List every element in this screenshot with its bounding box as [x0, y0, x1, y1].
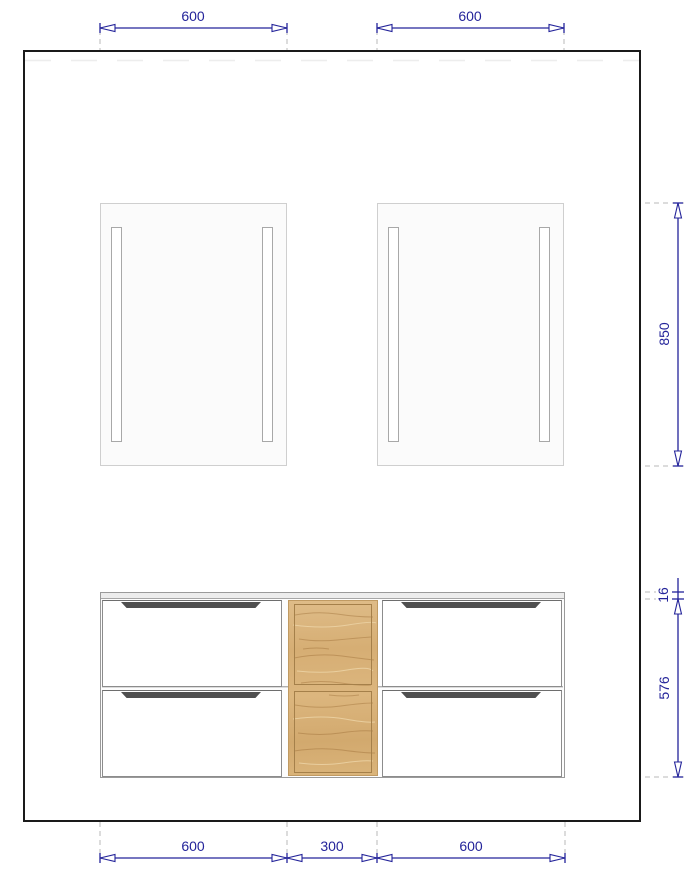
drawer-top-left: [102, 600, 282, 687]
dim-top-left-mirror: [100, 23, 287, 50]
dim-top-right-mirror: [377, 23, 564, 50]
mirror-cabinet-right: [377, 203, 564, 466]
dim-label-top-thickness: 16: [656, 585, 670, 605]
wood-drawer-front-bottom: [294, 691, 372, 773]
dim-label-top-right: 600: [458, 9, 481, 23]
led-strip-icon: [388, 227, 399, 442]
drawer-bottom-left: [102, 690, 282, 777]
mirror-cabinet-left: [100, 203, 287, 466]
wood-cabinet-column: [288, 600, 378, 776]
dim-label-front-height: 576: [657, 674, 671, 701]
drawer-top-right: [382, 600, 562, 687]
handle-groove-icon: [401, 692, 541, 698]
led-strip-icon: [262, 227, 273, 442]
led-strip-icon: [539, 227, 550, 442]
handle-groove-icon: [121, 602, 261, 608]
dim-label-bottom-left: 600: [181, 839, 204, 853]
drawer-bottom-right: [382, 690, 562, 777]
dim-label-top-left: 600: [181, 9, 204, 23]
led-strip-icon: [111, 227, 122, 442]
dim-label-bottom-right: 600: [459, 839, 482, 853]
dim-label-bottom-center: 300: [320, 839, 343, 853]
handle-groove-icon: [401, 602, 541, 608]
wood-drawer-front-top: [294, 604, 372, 685]
elevation-drawing: 600 600 850 16 576 600 300 600: [0, 0, 684, 870]
handle-groove-icon: [121, 692, 261, 698]
vanity-top-panel: [101, 593, 564, 599]
dim-label-mirror-height: 850: [657, 320, 671, 347]
vanity-carcass: [100, 592, 565, 778]
